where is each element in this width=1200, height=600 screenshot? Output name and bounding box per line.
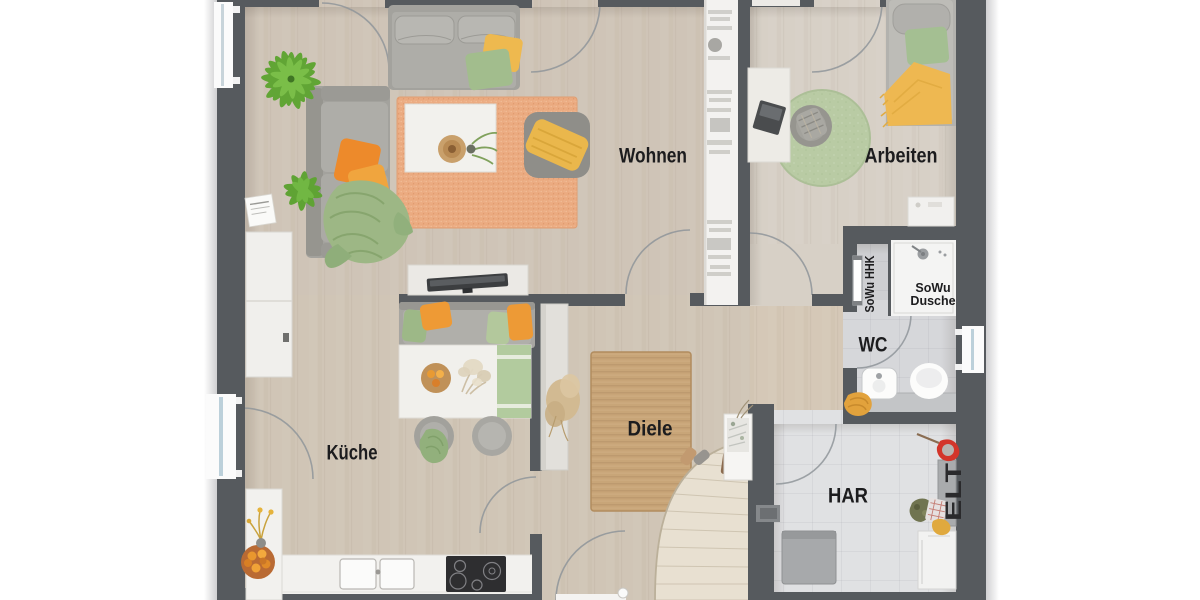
svg-text:WC: WC — [859, 334, 888, 357]
svg-text:Arbeiten: Arbeiten — [865, 145, 938, 168]
svg-text:SoWu HHK: SoWu HHK — [862, 255, 877, 313]
svg-text:Wohnen: Wohnen — [619, 145, 687, 168]
svg-text:Dusche: Dusche — [910, 294, 955, 308]
svg-text:SoWu: SoWu — [915, 281, 950, 295]
svg-text:Küche: Küche — [327, 442, 378, 465]
svg-text:Diele: Diele — [628, 418, 673, 441]
svg-text:HAR: HAR — [828, 485, 868, 508]
svg-text:ELT: ELT — [941, 463, 966, 521]
